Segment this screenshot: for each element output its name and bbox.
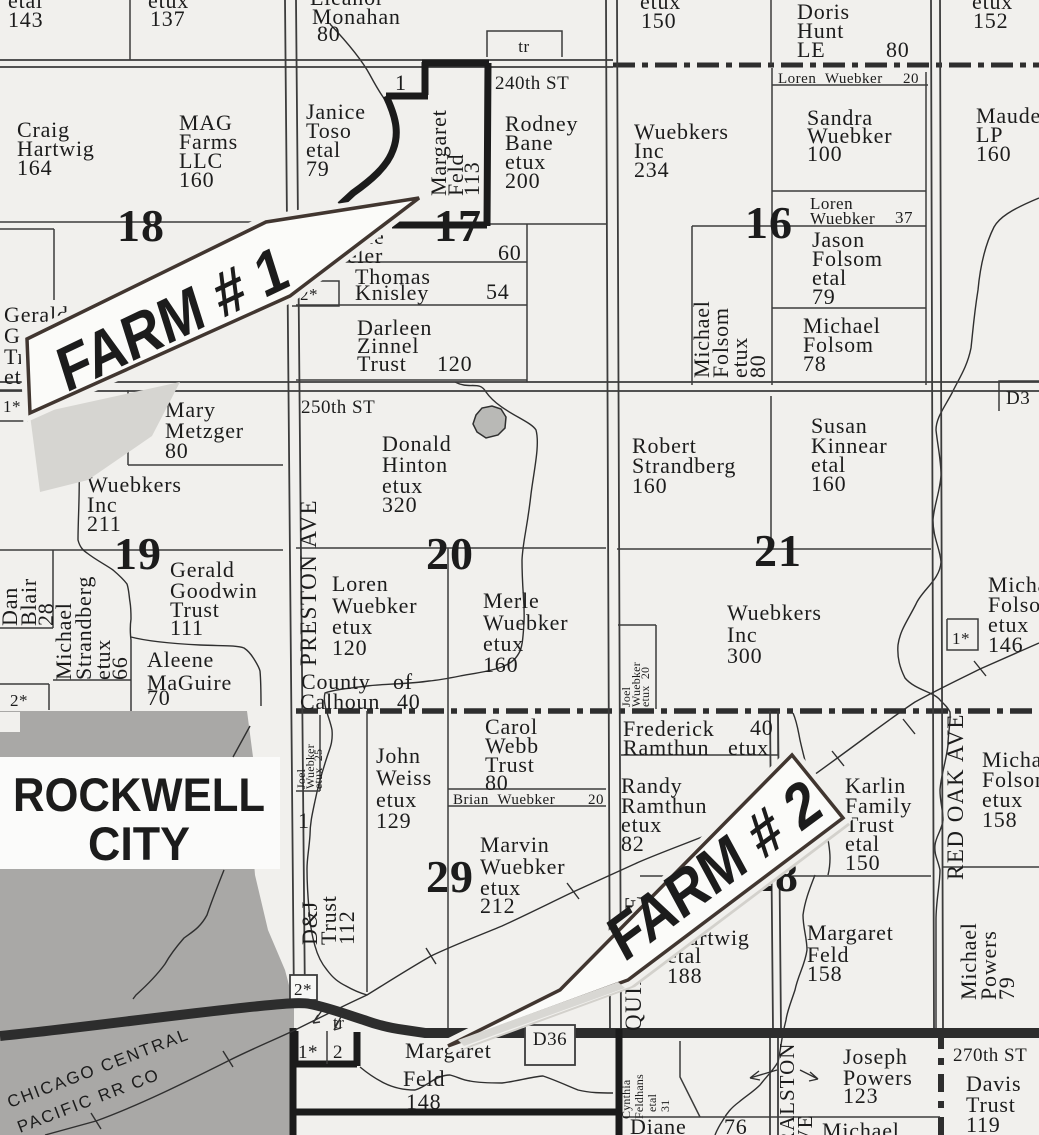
svg-text:etal: etal: [645, 1093, 659, 1112]
svg-text:80: 80: [317, 21, 341, 46]
svg-text:17: 17: [434, 200, 482, 251]
svg-text:80: 80: [165, 438, 189, 463]
svg-text:Calhoun: Calhoun: [300, 689, 380, 714]
svg-text:79: 79: [812, 284, 836, 309]
svg-text:Feld: Feld: [403, 1066, 445, 1091]
svg-text:150: 150: [845, 850, 880, 875]
svg-text:78: 78: [803, 351, 827, 376]
svg-text:1: 1: [298, 808, 310, 833]
svg-text:Loren Wuebker: Loren Wuebker: [778, 71, 883, 87]
svg-text:LE: LE: [797, 37, 825, 62]
svg-text:etux 25: etux 25: [311, 749, 325, 789]
svg-text:250th ST: 250th ST: [301, 397, 375, 418]
svg-text:123: 123: [843, 1083, 878, 1108]
svg-text:143: 143: [8, 7, 43, 32]
svg-text:2*: 2*: [294, 980, 312, 999]
svg-text:76: 76: [724, 1114, 748, 1135]
svg-text:137: 137: [150, 6, 185, 31]
svg-text:20: 20: [426, 528, 474, 579]
svg-text:188: 188: [667, 963, 702, 988]
svg-text:Ramthun: Ramthun: [623, 735, 709, 760]
svg-text:160: 160: [976, 141, 1011, 166]
svg-text:146: 146: [988, 632, 1023, 657]
svg-text:29: 29: [426, 851, 474, 902]
svg-text:119: 119: [966, 1112, 1001, 1135]
svg-text:PRESTON AVE: PRESTON AVE: [296, 499, 321, 666]
svg-text:Brian Wuebker: Brian Wuebker: [453, 792, 555, 808]
svg-text:Feldhans: Feldhans: [632, 1074, 646, 1119]
svg-text:20: 20: [903, 71, 919, 87]
svg-text:20: 20: [588, 792, 604, 808]
svg-text:148: 148: [406, 1089, 441, 1114]
svg-text:AVE: AVE: [793, 1115, 817, 1135]
svg-text:111: 111: [170, 615, 204, 640]
svg-text:82: 82: [621, 831, 645, 856]
svg-text:160: 160: [811, 471, 846, 496]
svg-text:Diane: Diane: [630, 1114, 687, 1135]
svg-text:158: 158: [982, 807, 1017, 832]
svg-text:16: 16: [745, 197, 793, 248]
svg-text:31: 31: [658, 1100, 672, 1112]
svg-text:320: 320: [382, 492, 417, 517]
svg-text:tr: tr: [518, 37, 529, 56]
svg-text:54: 54: [486, 279, 510, 304]
svg-text:120: 120: [332, 635, 367, 660]
svg-text:D3: D3: [1006, 388, 1030, 409]
svg-text:70: 70: [147, 685, 171, 710]
svg-text:21: 21: [754, 525, 802, 576]
svg-text:160: 160: [483, 652, 518, 677]
svg-text:212: 212: [480, 893, 515, 918]
svg-text:Wuebker: Wuebker: [810, 209, 875, 228]
svg-text:D36: D36: [533, 1029, 567, 1050]
svg-text:234: 234: [634, 157, 669, 182]
svg-text:19: 19: [114, 528, 162, 579]
svg-text:150: 150: [641, 8, 676, 33]
svg-text:Knisley: Knisley: [355, 280, 429, 305]
svg-text:129: 129: [376, 808, 411, 833]
svg-text:etux: etux: [728, 735, 769, 760]
svg-text:60: 60: [498, 240, 522, 265]
svg-text:200: 200: [505, 168, 540, 193]
svg-text:240th ST: 240th ST: [495, 73, 569, 94]
svg-text:1*: 1*: [298, 1042, 318, 1063]
svg-text:ROCKWELL: ROCKWELL: [13, 768, 265, 821]
svg-text:152: 152: [973, 8, 1008, 33]
svg-text:18: 18: [117, 200, 165, 251]
svg-text:2*: 2*: [10, 691, 28, 710]
svg-text:80: 80: [886, 37, 910, 62]
svg-text:etux 20: etux 20: [638, 667, 652, 707]
svg-text:CITY: CITY: [88, 817, 190, 870]
svg-text:Michael: Michael: [822, 1118, 900, 1135]
svg-text:40: 40: [397, 689, 421, 714]
svg-text:100: 100: [807, 141, 842, 166]
svg-text:79: 79: [994, 976, 1019, 1000]
svg-text:1*: 1*: [3, 397, 21, 416]
svg-text:164: 164: [17, 155, 52, 180]
svg-text:Aleene: Aleene: [147, 647, 214, 672]
svg-text:RED OAK AVE: RED OAK AVE: [943, 713, 968, 880]
svg-text:158: 158: [807, 961, 842, 986]
svg-text:79: 79: [306, 156, 330, 181]
svg-text:270th ST: 270th ST: [953, 1045, 1027, 1066]
svg-text:112: 112: [334, 910, 359, 945]
svg-text:37: 37: [895, 208, 913, 227]
svg-text:1: 1: [395, 70, 407, 95]
svg-text:300: 300: [727, 643, 762, 668]
svg-text:Trust: Trust: [357, 351, 407, 376]
svg-text:1*: 1*: [952, 629, 970, 648]
svg-text:80: 80: [745, 354, 770, 378]
svg-text:120: 120: [437, 351, 472, 376]
svg-text:160: 160: [179, 167, 214, 192]
svg-text:160: 160: [632, 473, 667, 498]
svg-text:113: 113: [459, 161, 484, 196]
svg-text:66: 66: [107, 656, 132, 680]
svg-text:2: 2: [333, 1042, 343, 1063]
